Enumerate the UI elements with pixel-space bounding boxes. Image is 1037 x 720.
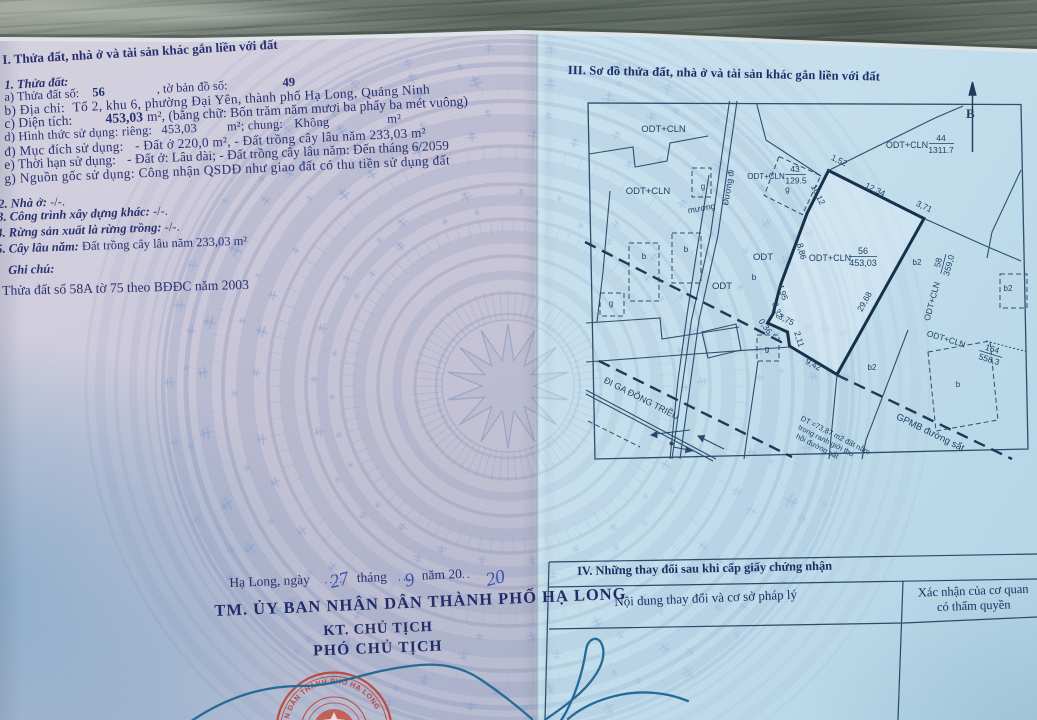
svg-text:ODT: ODT <box>753 252 773 263</box>
svg-text:b: b <box>684 245 689 254</box>
svg-text:ODT+CLN: ODT+CLN <box>641 124 686 135</box>
svg-text:b2: b2 <box>913 258 922 267</box>
svg-text:56: 56 <box>858 246 868 256</box>
svg-text:B: B <box>966 106 975 121</box>
svg-text:b: b <box>642 252 647 261</box>
svg-text:ODT+CLN: ODT+CLN <box>886 140 928 150</box>
svg-text:ODT+CLN: ODT+CLN <box>747 172 785 181</box>
svg-text:g: g <box>701 182 705 191</box>
svg-text:g: g <box>609 299 613 308</box>
svg-text:ODT+CLN: ODT+CLN <box>922 281 942 322</box>
svg-text:ODT+CLN: ODT+CLN <box>809 253 851 263</box>
svg-text:mương: mương <box>687 201 716 216</box>
svg-text:43: 43 <box>790 164 800 174</box>
svg-text:359,0: 359,0 <box>941 253 956 276</box>
svg-text:ODT: ODT <box>712 281 732 292</box>
svg-text:g: g <box>765 345 769 354</box>
svg-text:b2: b2 <box>868 363 877 372</box>
svg-text:1311.7: 1311.7 <box>928 145 954 155</box>
svg-text:129.5: 129.5 <box>785 176 807 186</box>
svg-text:b: b <box>752 273 757 282</box>
svg-text:44: 44 <box>936 133 946 143</box>
svg-text:g: g <box>785 185 789 194</box>
svg-text:b: b <box>956 380 961 389</box>
svg-text:453,03: 453,03 <box>849 258 877 268</box>
svg-text:ODT+CLN: ODT+CLN <box>626 186 671 197</box>
svg-text:ODT+CLN: ODT+CLN <box>926 328 967 349</box>
svg-text:b2: b2 <box>1004 284 1013 293</box>
svg-text:Đường đi: Đường đi <box>720 169 736 206</box>
svg-text:GPMB đường sắt: GPMB đường sắt <box>894 412 966 455</box>
svg-text:1,52: 1,52 <box>830 152 849 168</box>
svg-text:3,71: 3,71 <box>915 198 934 214</box>
